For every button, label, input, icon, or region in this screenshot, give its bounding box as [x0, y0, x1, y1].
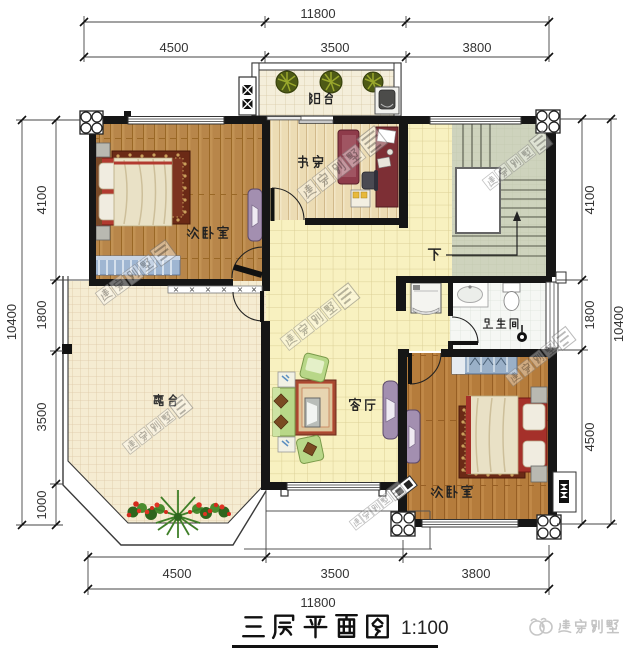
- svg-text:3500: 3500: [321, 566, 350, 581]
- svg-text:4100: 4100: [34, 186, 49, 215]
- svg-text:4500: 4500: [582, 423, 597, 452]
- svg-text:4100: 4100: [582, 186, 597, 215]
- svg-text:4500: 4500: [160, 40, 189, 55]
- svg-text:1000: 1000: [34, 491, 49, 520]
- svg-text:3500: 3500: [321, 40, 350, 55]
- svg-text:3500: 3500: [34, 403, 49, 432]
- svg-text:1:100: 1:100: [401, 618, 449, 639]
- svg-text:1800: 1800: [34, 301, 49, 330]
- svg-text:11800: 11800: [300, 6, 335, 21]
- svg-text:4500: 4500: [163, 566, 192, 581]
- svg-text:3800: 3800: [462, 566, 491, 581]
- svg-text:10400: 10400: [4, 304, 19, 340]
- svg-text:11800: 11800: [300, 595, 335, 610]
- svg-text:3800: 3800: [463, 40, 492, 55]
- svg-text:1800: 1800: [582, 301, 597, 330]
- svg-text:10400: 10400: [611, 306, 626, 342]
